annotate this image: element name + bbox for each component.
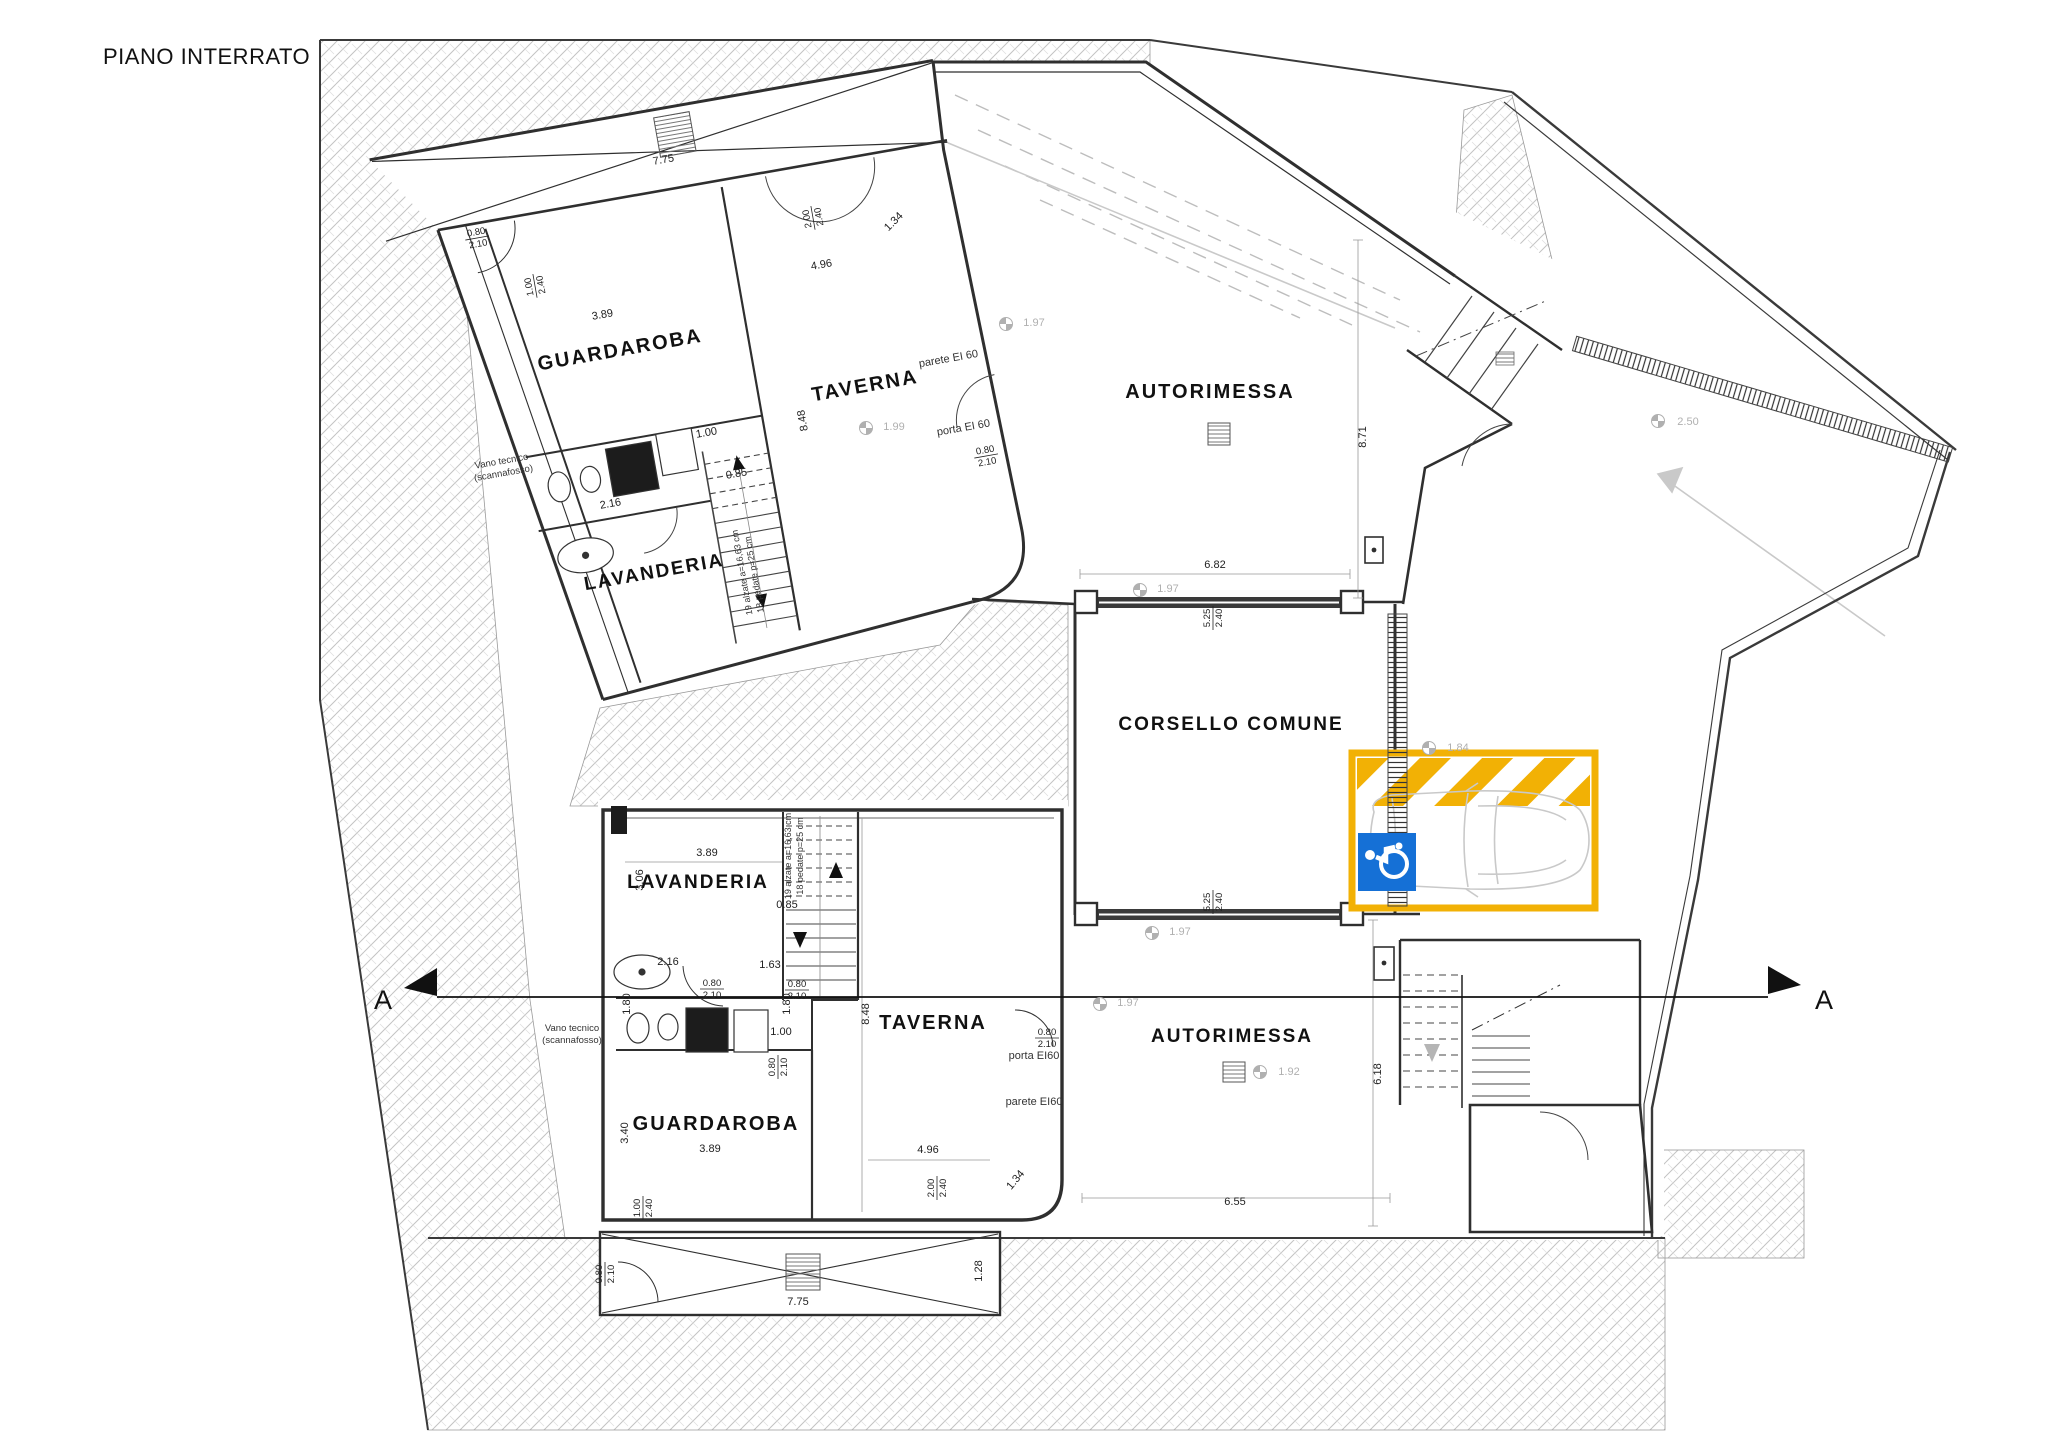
dim-label: 0.802.10 <box>767 1055 790 1079</box>
svg-text:A: A <box>1815 985 1833 1015</box>
section-letter: A <box>374 985 392 1015</box>
svg-text:4.96: 4.96 <box>917 1144 938 1156</box>
dim-label: 3.89 <box>699 1143 720 1155</box>
svg-text:5.25: 5.25 <box>1202 893 1213 912</box>
note-label: Vano tecnico <box>545 1023 599 1034</box>
ground-block-se <box>1658 1150 1804 1258</box>
dim-label: 3.06 <box>634 869 646 890</box>
svg-text:8.71: 8.71 <box>1357 426 1369 447</box>
svg-text:1.80: 1.80 <box>621 993 633 1014</box>
svg-text:1.00: 1.00 <box>632 1199 643 1218</box>
svg-text:18 pedate p=25 cm: 18 pedate p=25 cm <box>795 817 805 894</box>
section-letter: A <box>1815 985 1833 1015</box>
dim-label: 5.252.40 <box>1202 890 1225 914</box>
svg-text:5.25: 5.25 <box>1202 609 1213 628</box>
dim-label: 2.002.40 <box>926 1176 949 1200</box>
svg-text:6.82: 6.82 <box>1204 559 1225 571</box>
dim-label: 8.48 <box>860 1003 872 1024</box>
svg-text:2.10: 2.10 <box>703 990 722 1001</box>
dim-label: 6.82 <box>1204 559 1225 571</box>
svg-text:1.97: 1.97 <box>1023 317 1044 329</box>
floor-plan-svg: GUARDAROBATAVERNALAVANDERIAAUTORIMESSACO… <box>0 0 2048 1448</box>
dim-label: 5.252.40 <box>1202 606 1225 630</box>
svg-text:0.80: 0.80 <box>767 1058 778 1077</box>
svg-text:GUARDAROBA: GUARDAROBA <box>633 1113 800 1135</box>
dim-label: 3.40 <box>619 1122 631 1143</box>
dim-label: 1.80 <box>781 993 793 1014</box>
dim-label: 1.63 <box>759 959 780 971</box>
svg-text:2.10: 2.10 <box>606 1265 617 1284</box>
dim-label: 0.802.10 <box>594 1262 617 1286</box>
svg-text:TAVERNA: TAVERNA <box>879 1012 987 1034</box>
note-label: porta EI60 <box>1009 1050 1060 1062</box>
svg-text:A: A <box>374 985 392 1015</box>
svg-text:1.99: 1.99 <box>883 421 904 433</box>
dim-label: 0.802.10 <box>700 978 724 1001</box>
room-label: GUARDAROBA <box>633 1113 800 1135</box>
room-label: TAVERNA <box>879 1012 987 1034</box>
svg-text:2.40: 2.40 <box>938 1179 949 1198</box>
note-label: 18 pedate p=25 cm <box>795 817 805 894</box>
dim-label: 0.85 <box>776 899 797 911</box>
svg-text:2.10: 2.10 <box>779 1058 790 1077</box>
dim-label: 4.96 <box>917 1144 938 1156</box>
dim-label: 1.80 <box>621 993 633 1014</box>
svg-text:0.80: 0.80 <box>594 1265 605 1284</box>
svg-text:3.06: 3.06 <box>634 869 646 890</box>
svg-text:8.48: 8.48 <box>860 1003 872 1024</box>
dim-label: 6.18 <box>1372 1063 1384 1084</box>
svg-text:1.97: 1.97 <box>1157 583 1178 595</box>
dim-label: 2.16 <box>657 956 678 968</box>
dim-label: 1.002.40 <box>632 1196 655 1220</box>
svg-text:2.40: 2.40 <box>1214 609 1225 628</box>
svg-text:1.84: 1.84 <box>1447 742 1468 754</box>
svg-text:1.63: 1.63 <box>759 959 780 971</box>
note-label: parete EI60 <box>1006 1096 1063 1108</box>
dim-label: 0.802.10 <box>1035 1027 1059 1050</box>
dim-label: 1.28 <box>973 1260 985 1281</box>
svg-text:1.92: 1.92 <box>1278 1066 1299 1078</box>
room-label: AUTORIMESSA <box>1151 1026 1313 1047</box>
note-label: (scannafosso) <box>542 1035 602 1046</box>
svg-text:0.80: 0.80 <box>788 979 807 990</box>
svg-text:2.50: 2.50 <box>1677 416 1698 428</box>
room-label: AUTORIMESSA <box>1125 381 1294 403</box>
svg-text:19 alzate a=16,63 cm: 19 alzate a=16,63 cm <box>783 813 793 899</box>
note-label: 19 alzate a=16,63 cm <box>783 813 793 899</box>
floor-plan-page: PIANO INTERRATO <box>0 0 2048 1448</box>
svg-text:1.97: 1.97 <box>1169 926 1190 938</box>
room-label: LAVANDERIA <box>627 872 769 893</box>
svg-text:2.10: 2.10 <box>1038 1039 1057 1050</box>
room-label: CORSELLO COMUNE <box>1118 714 1343 735</box>
svg-text:CORSELLO COMUNE: CORSELLO COMUNE <box>1118 714 1343 735</box>
svg-text:2.16: 2.16 <box>657 956 678 968</box>
disabled-parking-sign <box>1358 833 1416 891</box>
dim-label: 7.75 <box>787 1296 808 1308</box>
fill-se-stair <box>1396 936 1664 1236</box>
svg-text:AUTORIMESSA: AUTORIMESSA <box>1151 1026 1313 1047</box>
svg-text:0.80: 0.80 <box>1038 1027 1057 1038</box>
svg-text:2.40: 2.40 <box>1214 893 1225 912</box>
svg-text:parete EI60: parete EI60 <box>1006 1096 1063 1108</box>
svg-text:7.75: 7.75 <box>787 1296 808 1308</box>
svg-text:3.89: 3.89 <box>696 847 717 859</box>
svg-text:1.00: 1.00 <box>770 1026 791 1038</box>
dim-label: 3.89 <box>696 847 717 859</box>
svg-text:(scannafosso): (scannafosso) <box>542 1035 602 1046</box>
drain-upper-autorimessa <box>1208 423 1230 445</box>
svg-text:2.40: 2.40 <box>644 1199 655 1218</box>
svg-text:LAVANDERIA: LAVANDERIA <box>627 872 769 893</box>
svg-text:6.55: 6.55 <box>1224 1196 1245 1208</box>
svg-text:6.18: 6.18 <box>1372 1063 1384 1084</box>
svg-text:0.85: 0.85 <box>776 899 797 911</box>
svg-text:Vano tecnico: Vano tecnico <box>545 1023 599 1034</box>
svg-text:3.40: 3.40 <box>619 1122 631 1143</box>
svg-text:porta EI60: porta EI60 <box>1009 1050 1060 1062</box>
svg-text:AUTORIMESSA: AUTORIMESSA <box>1125 381 1294 403</box>
svg-text:1.97: 1.97 <box>1117 997 1138 1009</box>
svg-text:2.00: 2.00 <box>926 1179 937 1198</box>
page-title: PIANO INTERRATO <box>103 44 310 70</box>
svg-text:1.28: 1.28 <box>973 1260 985 1281</box>
dim-label: 1.00 <box>770 1026 791 1038</box>
section-flag-right <box>1768 966 1801 994</box>
svg-text:0.80: 0.80 <box>703 978 722 989</box>
svg-text:1.80: 1.80 <box>781 993 793 1014</box>
drain-lower-autorimessa <box>1223 1062 1245 1082</box>
dim-label: 6.55 <box>1224 1196 1245 1208</box>
svg-text:3.89: 3.89 <box>699 1143 720 1155</box>
dim-label: 8.71 <box>1357 426 1369 447</box>
